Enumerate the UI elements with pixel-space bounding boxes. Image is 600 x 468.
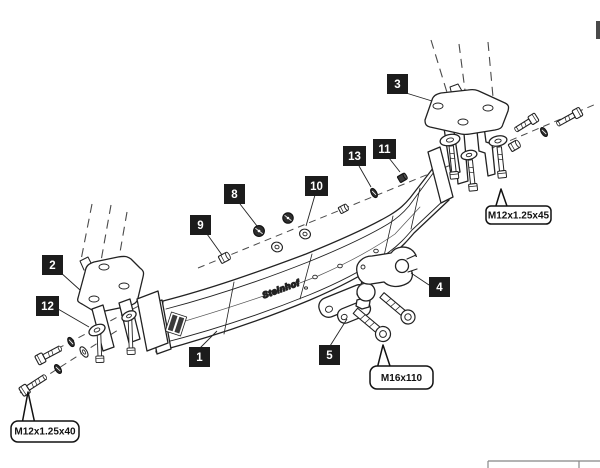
page-edge-mark <box>596 21 600 39</box>
svg-text:3: 3 <box>394 79 400 91</box>
part-label-1: 1 <box>189 347 210 367</box>
svg-text:4: 4 <box>436 282 443 294</box>
svg-text:13: 13 <box>348 151 361 163</box>
table-fragment <box>488 461 600 468</box>
svg-text:11: 11 <box>378 144 391 156</box>
left-fastener-chain <box>19 336 90 396</box>
part-label-12: 12 <box>36 296 59 316</box>
bolt-m16 <box>351 305 394 344</box>
part-label-9: 9 <box>190 215 211 235</box>
spring-washer-13 <box>369 187 379 198</box>
towbar-exploded-diagram: Steinhof <box>0 0 600 468</box>
bolt-m12x45 <box>555 107 583 128</box>
part-label-13: 13 <box>343 146 366 166</box>
svg-text:1: 1 <box>196 352 203 364</box>
part-label-2: 2 <box>42 255 63 275</box>
bolt-m12x45 <box>513 113 539 134</box>
svg-text:9: 9 <box>197 220 203 232</box>
part-label-4: 4 <box>429 277 450 297</box>
svg-text:12: 12 <box>41 301 54 313</box>
towbar-diagram-page: Steinhof <box>0 0 600 468</box>
spring-washer <box>539 126 549 137</box>
washer <box>488 134 508 148</box>
right-fastener-chain <box>508 107 583 152</box>
svg-text:8: 8 <box>231 189 238 201</box>
spring-washer <box>53 363 63 374</box>
part-label-11: 11 <box>373 139 396 159</box>
svg-text:5: 5 <box>326 350 333 362</box>
part-label-10: 10 <box>305 176 328 196</box>
washer <box>270 241 283 254</box>
bolt-m12 <box>35 343 64 365</box>
callout-m16x110: M16x110 <box>370 345 433 389</box>
part-label-5: 5 <box>319 345 340 365</box>
spring-washer <box>283 213 293 223</box>
svg-text:M12x1.25x45: M12x1.25x45 <box>488 211 550 222</box>
bolt-m12x45 <box>495 147 507 179</box>
callout-m12x40: M12x1.25x40 <box>11 392 79 442</box>
part-label-8: 8 <box>224 184 245 204</box>
bolt-m16 <box>377 290 417 327</box>
spring-washer <box>66 336 75 347</box>
bolt-m12x40 <box>19 372 49 396</box>
nut-11 <box>397 173 408 183</box>
chassis-reference-lines-left <box>81 204 127 261</box>
part-label-3: 3 <box>387 74 408 94</box>
nut-9 <box>218 252 231 264</box>
svg-text:M12x1.25x40: M12x1.25x40 <box>14 427 76 438</box>
size-callouts: M12x1.25x45 M16x110 M12x1.25x40 <box>11 189 551 442</box>
washer <box>78 346 89 359</box>
washer-10 <box>298 228 311 241</box>
svg-text:M16x110: M16x110 <box>381 373 423 384</box>
svg-text:2: 2 <box>49 260 55 272</box>
svg-text:10: 10 <box>310 181 323 193</box>
left-bracket-side-plate <box>137 291 168 351</box>
nut <box>508 139 521 151</box>
nut <box>338 204 349 214</box>
callout-m12x45: M12x1.25x45 <box>486 189 551 224</box>
spring-washer-8 <box>254 226 265 237</box>
